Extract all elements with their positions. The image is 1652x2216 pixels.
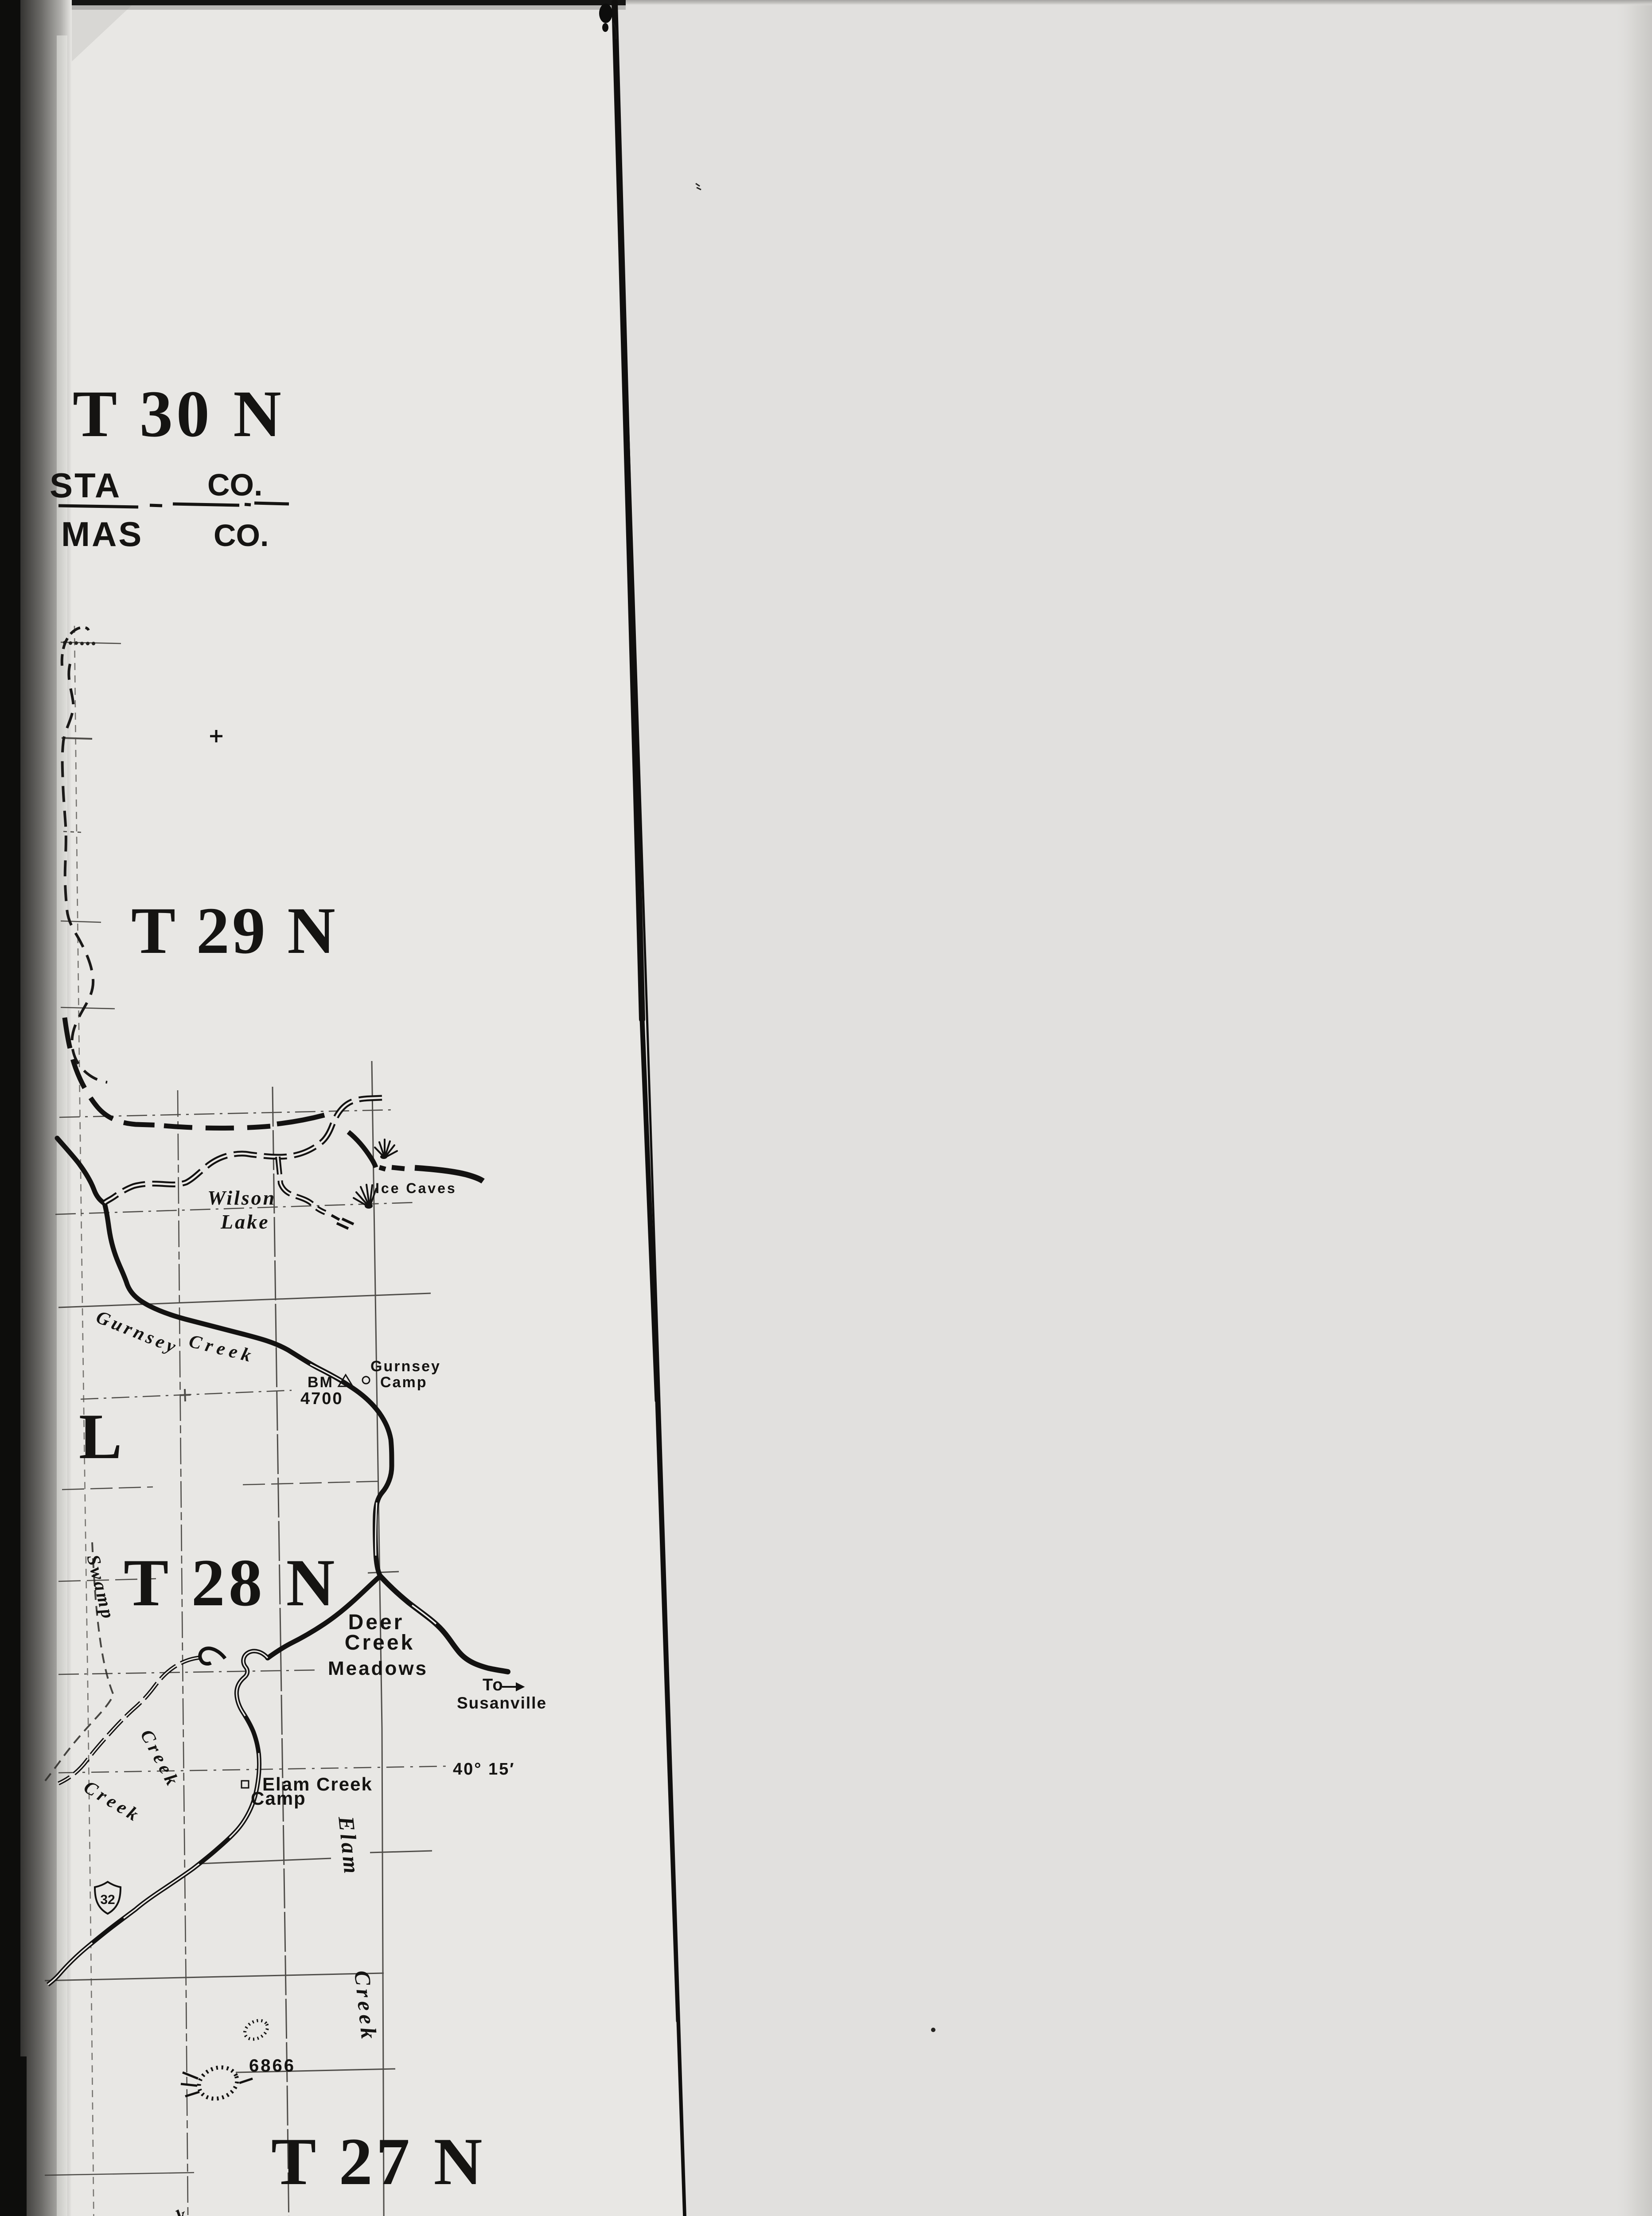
svg-text:4700: 4700	[300, 1389, 343, 1408]
svg-text:STA: STA	[50, 466, 121, 505]
svg-text:Lake: Lake	[220, 1210, 270, 1233]
svg-text:Susanville: Susanville	[457, 1694, 547, 1712]
svg-text:Gurnsey: Gurnsey	[370, 1358, 441, 1375]
svg-text:MAS: MAS	[61, 515, 143, 554]
svg-text:40° 15′: 40° 15′	[453, 1760, 515, 1779]
svg-text:Camp: Camp	[251, 1788, 306, 1809]
svg-text:Camp: Camp	[380, 1374, 427, 1391]
svg-text:6866: 6866	[249, 2056, 296, 2076]
svg-text:T 28 N: T 28 N	[124, 1545, 338, 1620]
svg-text:32: 32	[100, 1892, 115, 1907]
svg-text:Ice Caves: Ice Caves	[375, 1180, 457, 1196]
svg-text:T 30 N: T 30 N	[73, 377, 285, 451]
svg-text:L: L	[79, 1401, 122, 1472]
svg-text:Wilson: Wilson	[207, 1186, 276, 1209]
svg-text:To: To	[483, 1676, 504, 1694]
svg-text:T 27 N: T 27 N	[271, 2124, 486, 2199]
svg-text:Creek: Creek	[345, 1631, 415, 1654]
svg-text:CO.: CO.	[207, 468, 262, 502]
svg-text:CO.: CO.	[214, 518, 269, 553]
svg-text:BM: BM	[308, 1374, 334, 1391]
svg-text:Meadows: Meadows	[328, 1658, 428, 1679]
svg-text:T 29 N: T 29 N	[131, 894, 338, 968]
